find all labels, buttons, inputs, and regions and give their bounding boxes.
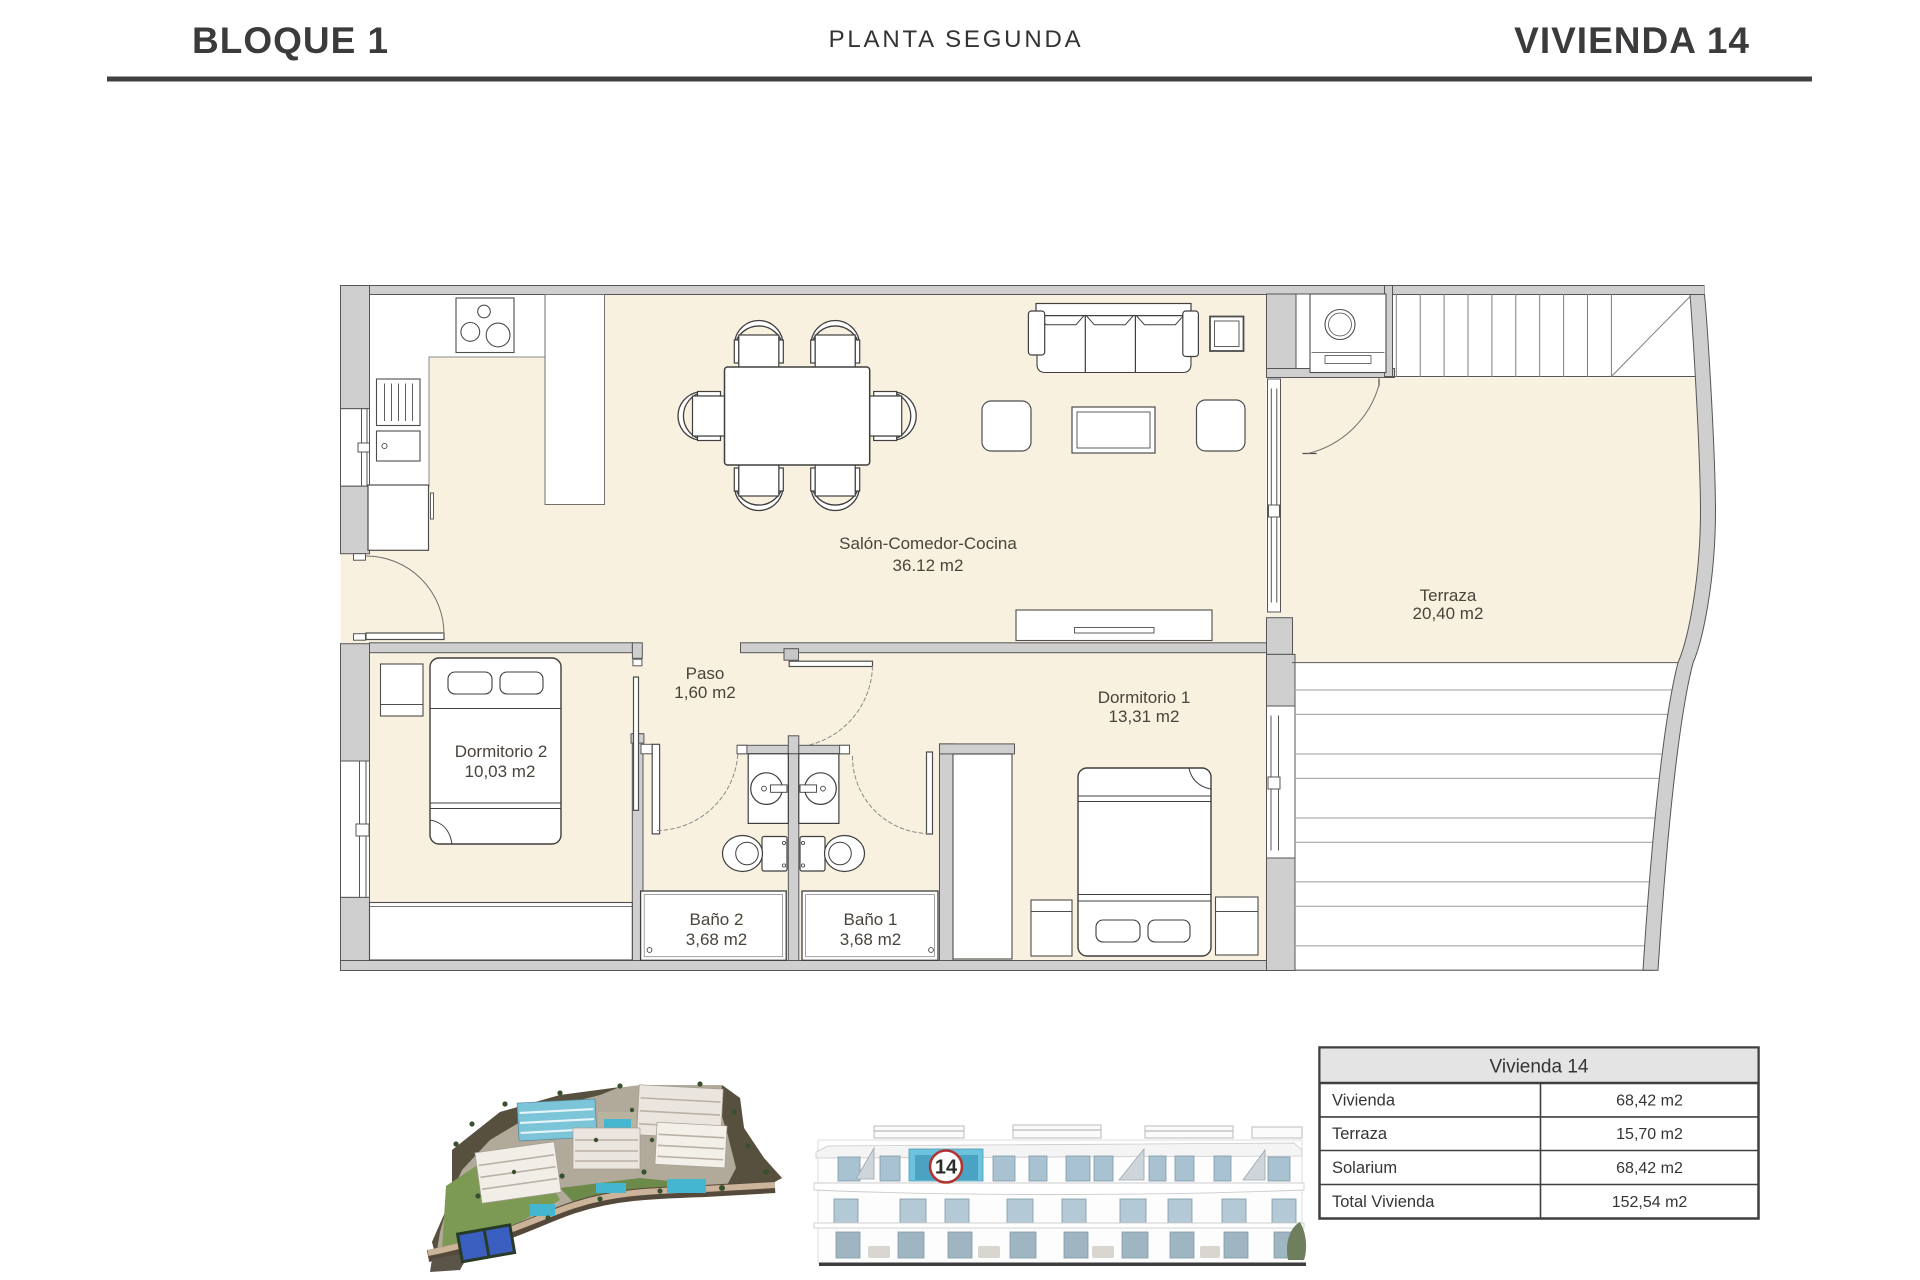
svg-text:Total Vivienda: Total Vivienda xyxy=(1332,1193,1435,1211)
svg-text:Terraza: Terraza xyxy=(1420,586,1477,605)
svg-text:3,68 m2: 3,68 m2 xyxy=(840,930,901,949)
svg-text:Vivienda: Vivienda xyxy=(1332,1092,1396,1110)
svg-text:Solarium: Solarium xyxy=(1332,1159,1397,1177)
svg-text:3,68 m2: 3,68 m2 xyxy=(686,930,747,949)
svg-text:14: 14 xyxy=(935,1157,958,1179)
svg-text:Baño 1: Baño 1 xyxy=(844,910,898,929)
svg-text:152,54 m2: 152,54 m2 xyxy=(1612,1194,1688,1211)
svg-text:Salón-Comedor-Cocina: Salón-Comedor-Cocina xyxy=(839,534,1017,553)
svg-text:20,40 m2: 20,40 m2 xyxy=(1413,604,1484,623)
svg-text:PLANTA SEGUNDA: PLANTA SEGUNDA xyxy=(829,26,1084,53)
svg-text:Paso: Paso xyxy=(686,664,725,683)
svg-text:13,31 m2: 13,31 m2 xyxy=(1109,707,1180,726)
svg-text:1,60 m2: 1,60 m2 xyxy=(674,683,735,702)
svg-text:68,42 m2: 68,42 m2 xyxy=(1616,1093,1683,1110)
svg-text:Baño 2: Baño 2 xyxy=(690,910,744,929)
svg-text:68,42 m2: 68,42 m2 xyxy=(1616,1160,1683,1177)
svg-text:Vivienda 14: Vivienda 14 xyxy=(1490,1057,1589,1078)
svg-text:Dormitorio 1: Dormitorio 1 xyxy=(1098,688,1191,707)
svg-text:Dormitorio 2: Dormitorio 2 xyxy=(455,742,548,761)
svg-text:15,70 m2: 15,70 m2 xyxy=(1616,1126,1683,1143)
svg-text:Terraza: Terraza xyxy=(1332,1125,1388,1143)
svg-text:VIVIENDA 14: VIVIENDA 14 xyxy=(1514,20,1750,61)
svg-text:BLOQUE 1: BLOQUE 1 xyxy=(192,20,389,61)
svg-text:10,03 m2: 10,03 m2 xyxy=(465,762,536,781)
svg-text:36.12 m2: 36.12 m2 xyxy=(893,556,964,575)
